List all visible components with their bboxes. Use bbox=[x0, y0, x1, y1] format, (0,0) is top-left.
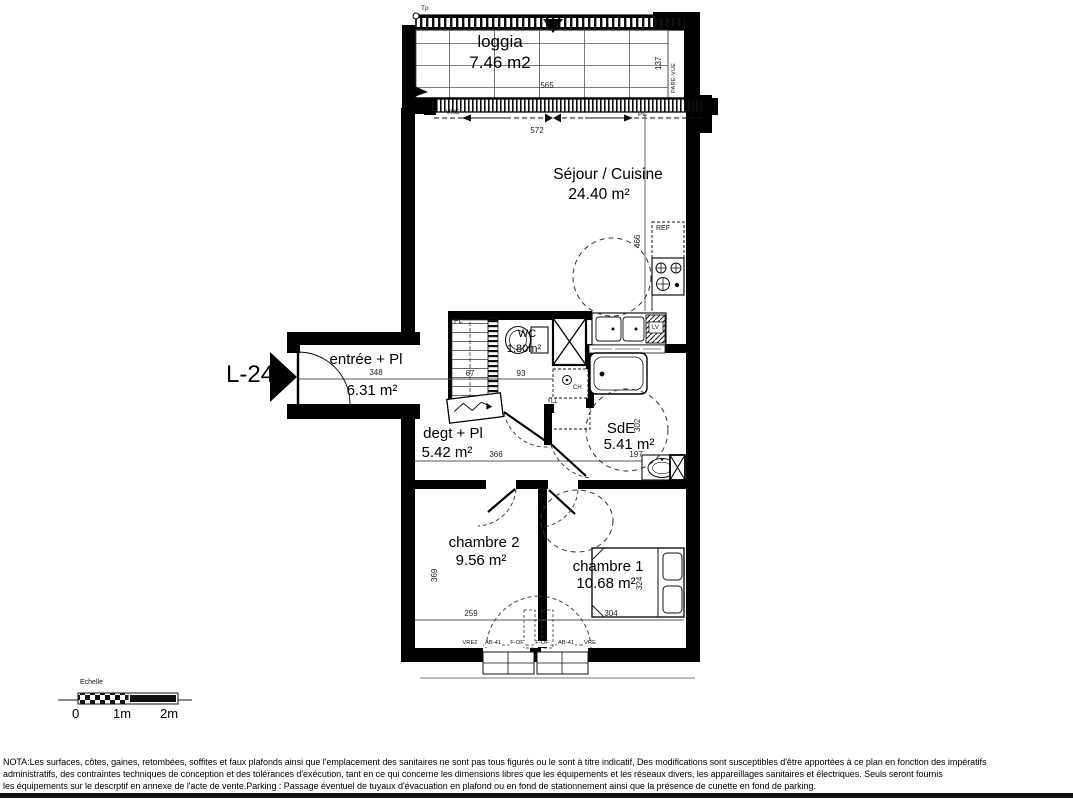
nota-line-3: les équipements sur le descrptif en anne… bbox=[3, 781, 816, 791]
bedroom2-door-leaf bbox=[488, 489, 515, 512]
dim-259: 259 bbox=[464, 610, 477, 618]
room-label-chambre2: chambre 2 bbox=[449, 535, 520, 550]
duct-2-icon bbox=[670, 455, 685, 480]
dim-137: 137 bbox=[655, 57, 663, 70]
scale-1m: 1m bbox=[113, 707, 131, 720]
unit-entry-arrow-icon bbox=[270, 352, 297, 402]
room-area-chambre1: 10.68 m² bbox=[576, 576, 635, 591]
floor-plan-page: L-24 loggia 7.46 m2 Séjour / Cuisine 24.… bbox=[0, 0, 1073, 800]
dishwasher-label: LV bbox=[652, 325, 659, 331]
sde-door-leaf bbox=[551, 444, 586, 476]
room-label-wc: WC bbox=[518, 329, 536, 340]
room-area-chambre2: 9.56 m² bbox=[456, 553, 507, 568]
scale-bar bbox=[58, 693, 192, 704]
room-area-entree: 6.31 m² bbox=[347, 383, 398, 398]
vre-label: VRE bbox=[446, 110, 459, 117]
washer-label: LL bbox=[551, 399, 558, 405]
window-type-label: AB-41 bbox=[484, 641, 502, 647]
dim-324: 324 bbox=[636, 577, 644, 590]
arrow-left-icon bbox=[462, 115, 471, 122]
dim-366: 366 bbox=[489, 451, 502, 459]
room-label-chambre1: chambre 1 bbox=[573, 559, 644, 574]
tp-label: Tp bbox=[421, 6, 429, 13]
dim-93: 93 bbox=[517, 370, 526, 378]
scale-2m: 2m bbox=[160, 707, 178, 720]
scale-title: Echelle bbox=[80, 679, 103, 686]
unit-label: L-24 bbox=[226, 363, 274, 387]
room-label-sejour: Séjour / Cuisine bbox=[553, 167, 662, 183]
technical-duct-icon bbox=[553, 318, 586, 365]
wc-door-leaf bbox=[504, 412, 547, 442]
closet-shelves bbox=[452, 318, 498, 406]
window-type-label: VRE2 bbox=[461, 641, 478, 647]
scale-0: 0 bbox=[72, 707, 79, 720]
pc-label: PC bbox=[638, 112, 647, 119]
room-label-sde: SdE bbox=[607, 421, 635, 436]
nota-line-1: NOTA:Les surfaces, côtes, gaines, retomb… bbox=[3, 757, 986, 767]
room-label-degt: degt + Pl bbox=[423, 426, 483, 441]
door-swing-arcs bbox=[478, 413, 590, 527]
room-area-loggia: 7.46 m2 bbox=[469, 54, 530, 71]
bottom-windows bbox=[483, 596, 591, 674]
cooktop-icon bbox=[652, 258, 684, 311]
slider-symbol-icon bbox=[545, 114, 553, 123]
nota-line-2: administratifs, des contraintes techniqu… bbox=[3, 769, 943, 779]
window-type-label: VRE bbox=[583, 641, 597, 647]
floor-plan-drawing bbox=[0, 0, 1073, 800]
dim-369: 369 bbox=[431, 569, 439, 582]
shower-tray-icon bbox=[590, 353, 647, 394]
room-area-wc: 1.80m² bbox=[507, 344, 541, 355]
dim-67: 67 bbox=[466, 370, 475, 378]
room-label-entree: entrée + Pl bbox=[330, 352, 403, 367]
dim-466: 466 bbox=[634, 235, 642, 248]
sliding-bay-window bbox=[430, 99, 708, 123]
dim-572: 572 bbox=[530, 127, 543, 135]
pare-vue-label: PARE-VUE bbox=[672, 63, 678, 93]
fridge-label: REF bbox=[656, 225, 670, 232]
page-bottom-rule bbox=[0, 793, 1073, 798]
window-type-label: F-OF bbox=[534, 641, 550, 647]
window-type-label: F-OF bbox=[509, 641, 525, 647]
arrow-right-icon bbox=[624, 115, 633, 122]
room-label-loggia: loggia bbox=[477, 33, 522, 50]
dim-197: 197 bbox=[629, 451, 642, 459]
dim-304: 304 bbox=[604, 610, 617, 618]
window-type-label: AB-41 bbox=[557, 641, 575, 647]
dim-302: 302 bbox=[634, 419, 642, 432]
water-heater-label: CH bbox=[573, 385, 582, 391]
dim-348: 348 bbox=[369, 369, 382, 377]
water-heater-icon bbox=[553, 369, 588, 398]
room-area-degt: 5.42 m² bbox=[422, 445, 473, 460]
room-area-sejour: 24.40 m² bbox=[568, 187, 629, 203]
kitchen-sink-icon bbox=[589, 313, 666, 353]
dim-565: 565 bbox=[540, 82, 553, 90]
closet-label: PL bbox=[454, 318, 463, 325]
